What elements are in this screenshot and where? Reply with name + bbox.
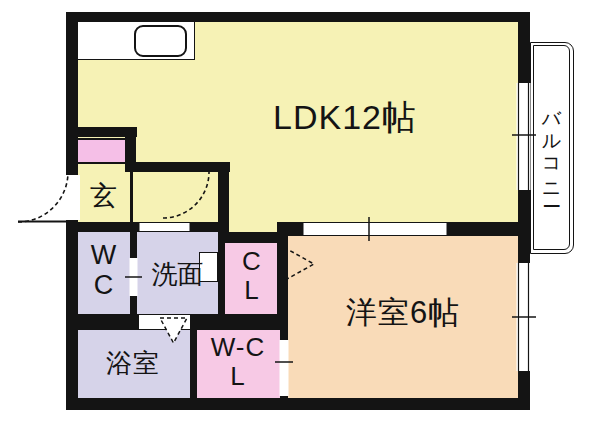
ldk-label: LDK12帖 — [210, 98, 480, 136]
shoe-cabinet — [76, 138, 127, 164]
washroom-label: 洗面 — [137, 260, 218, 289]
sliding-door-partition — [303, 223, 447, 236]
wc-label: WC — [87, 240, 121, 300]
closet-door-triangle — [287, 249, 314, 279]
hall-door-arc — [163, 172, 209, 218]
bathroom-door-triangle — [160, 318, 187, 343]
western-room-label: 洋室6帖 — [292, 296, 514, 331]
entrance-door-arc — [18, 172, 68, 222]
closet-label: CL — [236, 247, 268, 305]
entrance-label: 玄 — [81, 181, 127, 211]
bathroom-label: 浴室 — [80, 349, 186, 378]
floor-plan: バルコニー LDK12帖 洋室6帖 玄 WC 洗面 浴室 CL W-CL — [0, 0, 600, 422]
kitchen-sink — [134, 25, 187, 57]
walkin-closet-label: W-CL — [207, 333, 269, 391]
wcl-door-opening — [280, 340, 289, 396]
washroom-door-opening — [139, 223, 190, 232]
entrance-opening — [64, 175, 80, 220]
